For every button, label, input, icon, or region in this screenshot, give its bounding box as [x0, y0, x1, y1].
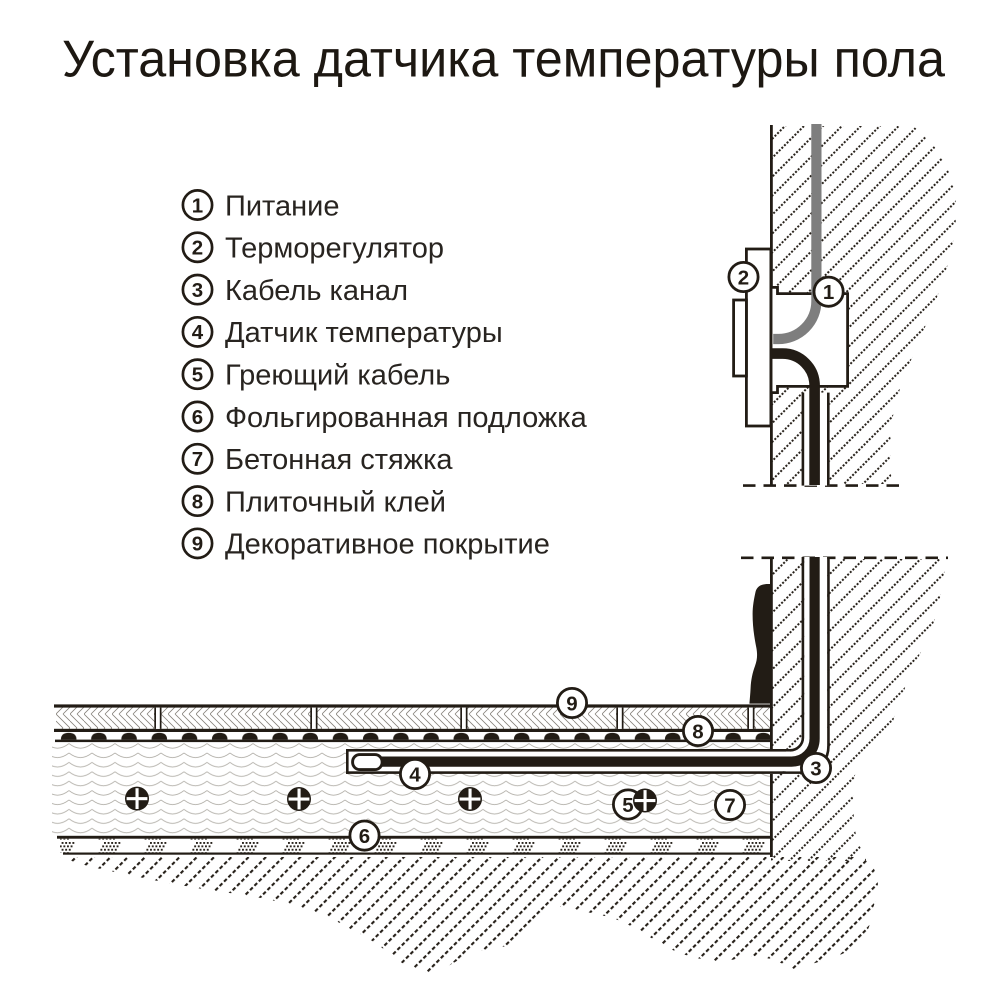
- svg-text:7: 7: [192, 448, 203, 471]
- svg-text:Декоративное покрытие: Декоративное покрытие: [225, 529, 550, 561]
- svg-text:Греющий кабель: Греющий кабель: [225, 360, 450, 392]
- svg-text:4: 4: [192, 321, 204, 344]
- svg-text:8: 8: [692, 720, 703, 743]
- svg-text:6: 6: [192, 406, 203, 429]
- svg-text:7: 7: [724, 794, 735, 817]
- svg-text:5: 5: [192, 364, 203, 387]
- svg-text:Терморегулятор: Терморегулятор: [225, 233, 444, 265]
- svg-text:9: 9: [566, 692, 577, 715]
- svg-text:5: 5: [622, 794, 633, 817]
- svg-text:Питание: Питание: [225, 190, 339, 222]
- svg-text:2: 2: [192, 237, 203, 260]
- svg-text:Бетонная стяжка: Бетонная стяжка: [225, 444, 453, 476]
- svg-text:1: 1: [192, 194, 203, 217]
- svg-text:9: 9: [192, 533, 203, 556]
- svg-text:1: 1: [823, 281, 834, 304]
- svg-text:Фольгированная подложка: Фольгированная подложка: [225, 402, 588, 434]
- svg-text:6: 6: [359, 825, 370, 848]
- svg-text:Установка датчика температуры: Установка датчика температуры пола: [62, 30, 945, 88]
- svg-text:Кабель канал: Кабель канал: [225, 275, 408, 307]
- svg-text:8: 8: [192, 490, 203, 513]
- svg-text:3: 3: [192, 279, 203, 302]
- svg-text:2: 2: [738, 266, 749, 289]
- svg-text:4: 4: [409, 763, 421, 786]
- svg-text:3: 3: [810, 757, 821, 780]
- svg-text:Датчик температуры: Датчик температуры: [225, 317, 503, 349]
- svg-text:Плиточный клей: Плиточный клей: [225, 486, 446, 518]
